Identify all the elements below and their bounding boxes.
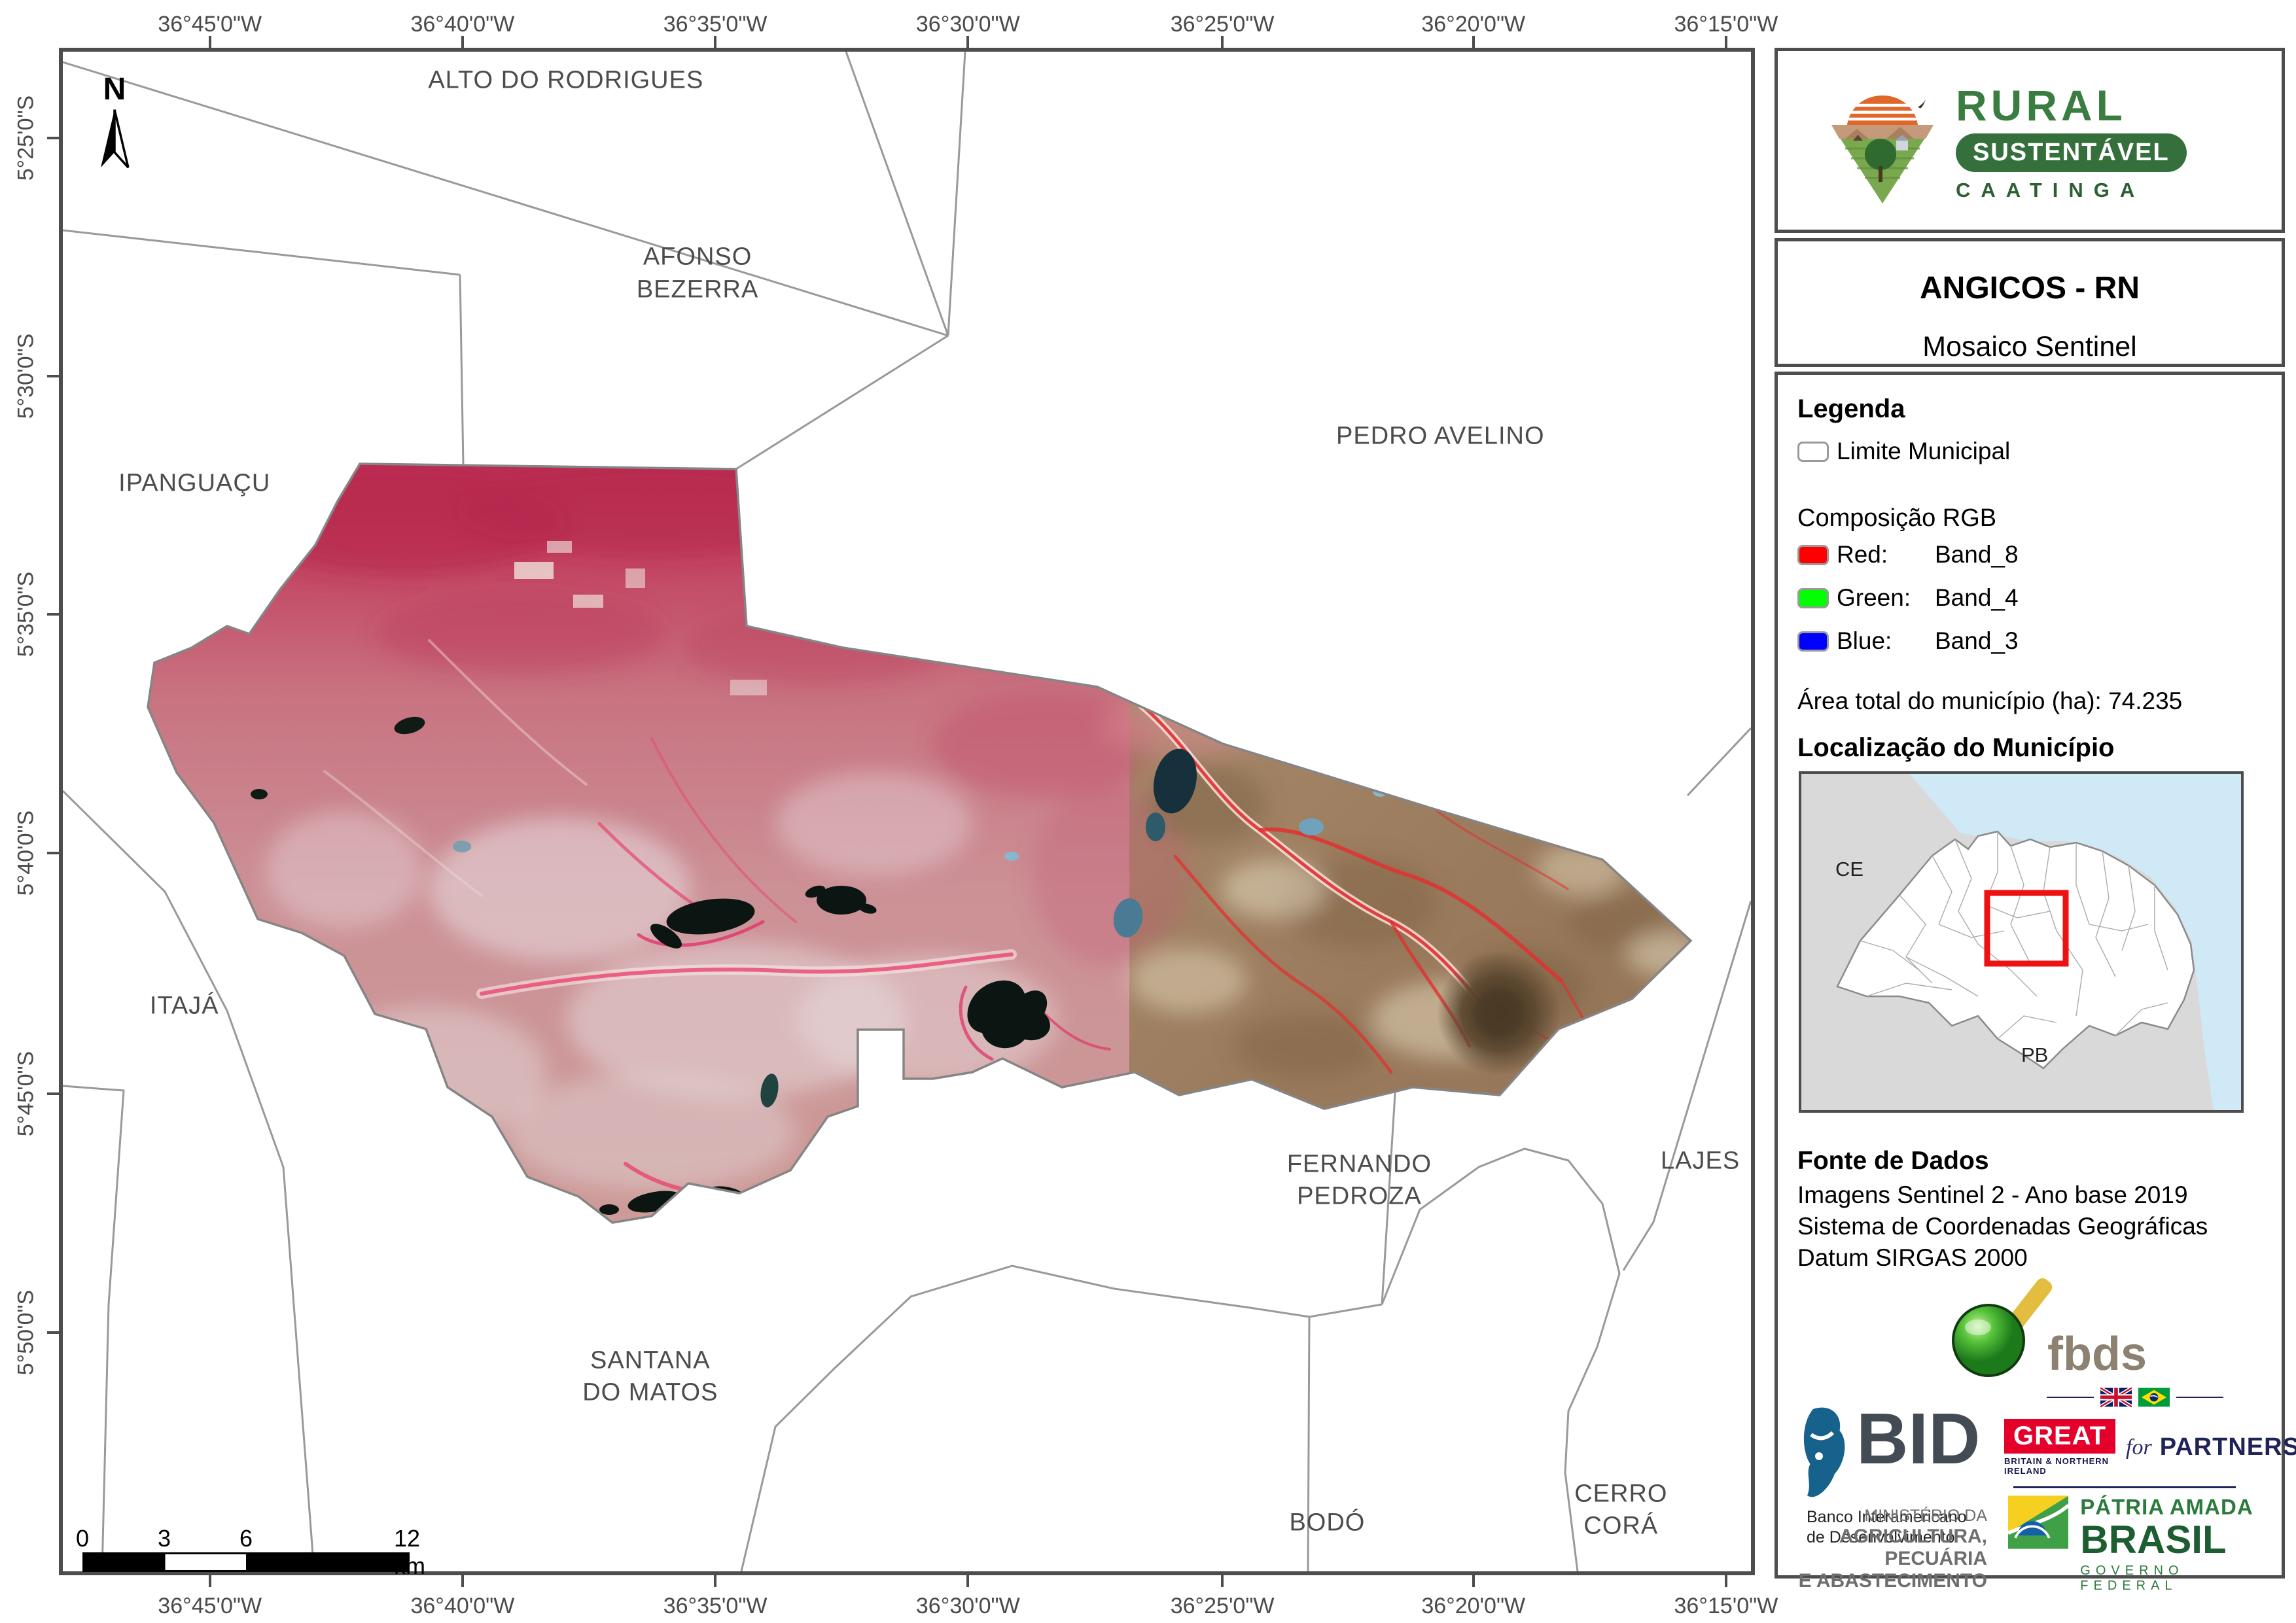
lon-tick-top: [209, 36, 211, 48]
bid-icon: [1797, 1405, 1848, 1503]
area-value: 74.235: [2108, 688, 2182, 714]
location-heading: Localização do Município: [1797, 733, 2115, 763]
lon-tick-top: [966, 36, 969, 48]
lon-tick-top: [1221, 36, 1224, 48]
scale-label-2: 6: [239, 1525, 253, 1552]
satellite-mosaic: [63, 52, 1751, 1571]
lon-tick-bottom: [461, 1575, 464, 1587]
lon-label-bottom: 36°45'0"W: [158, 1594, 262, 1619]
legend-panel: Legenda Limite Municipal Composição RGB …: [1775, 372, 2285, 1579]
state-label-ce: CE: [1835, 858, 1863, 881]
lon-tick-bottom: [714, 1575, 716, 1587]
lat-label-left: 5°50'0"S: [14, 1289, 39, 1374]
brazil-flag-icon: [2138, 1387, 2170, 1407]
fonte-line-1: Imagens Sentinel 2 - Ano base 2019: [1797, 1179, 2208, 1211]
lon-label-bottom: 36°15'0"W: [1674, 1594, 1778, 1619]
place-label-ipangua-u: IPANGUAÇU: [118, 467, 270, 499]
rural-sustentavel-icon: [1824, 77, 1941, 208]
lon-label-bottom: 36°35'0"W: [663, 1594, 768, 1619]
great-partnership-word: PARTNERSHIP: [2160, 1433, 2296, 1461]
green-key: Green:: [1837, 584, 1935, 612]
governo-icon: [2008, 1495, 2068, 1550]
red-key: Red:: [1837, 541, 1935, 568]
lon-tick-top: [714, 36, 716, 48]
governo-federal-logo: PÁTRIA AMADA BRASIL GOVERNO FEDERAL: [2008, 1495, 2282, 1594]
legend-item-blue: Blue:Band_3: [1797, 627, 2019, 655]
place-label-itaj-: ITAJÁ: [150, 990, 219, 1022]
state-label-pb: PB: [2021, 1043, 2048, 1067]
logo-subtitle: SUSTENTÁVEL: [1973, 139, 2170, 166]
governo-line-3: GOVERNO FEDERAL: [2080, 1563, 2282, 1594]
lat-tick-left: [47, 375, 59, 377]
great-sub: BRITAIN & NORTHERN IRELAND: [2004, 1456, 2115, 1476]
legend-item-limite: Limite Municipal: [1797, 438, 2010, 465]
north-label: N: [79, 74, 150, 105]
governo-line-2: BRASIL: [2080, 1520, 2282, 1560]
lon-label-bottom: 36°30'0"W: [916, 1594, 1020, 1619]
north-arrow: N: [79, 74, 150, 175]
place-label-alto-do-rodrigues: ALTO DO RODRIGUES: [428, 64, 703, 96]
lat-label-left: 5°30'0"S: [14, 334, 39, 419]
lon-tick-bottom: [966, 1575, 969, 1587]
lat-label-left: 5°40'0"S: [14, 810, 39, 895]
uk-flag-icon: [2100, 1387, 2132, 1407]
scale-label-1: 3: [158, 1525, 171, 1552]
fonte-heading: Fonte de Dados: [1797, 1147, 1989, 1176]
logo-subtitle-pill: SUSTENTÁVEL: [1956, 133, 2187, 172]
north-arrow-icon: [92, 107, 137, 172]
lon-label-top: 36°30'0"W: [916, 12, 1020, 37]
ministerio-line-3: E ABASTECIMENTO: [1797, 1570, 1987, 1592]
location-inset-map: CE PB: [1799, 771, 2244, 1113]
lon-label-top: 36°45'0"W: [158, 12, 262, 37]
flag-divider-right: [2176, 1397, 2223, 1398]
legend-heading: Legenda: [1797, 394, 1905, 424]
map-subtitle: Mosaico Sentinel: [1778, 331, 2282, 363]
great-for: for: [2126, 1435, 2152, 1460]
area-total: Área total do município (ha): 74.235: [1797, 688, 2182, 715]
title-panel: ANGICOS - RN Mosaico Sentinel: [1775, 238, 2285, 367]
blue-key: Blue:: [1837, 627, 1935, 655]
lat-label-left: 5°25'0"S: [14, 96, 39, 181]
program-logo-panel: RURAL SUSTENTÁVEL CAATINGA: [1775, 48, 2285, 233]
legend-item-red: Red:Band_8: [1797, 541, 2019, 568]
place-label-fernando-pedroza: FERNANDO PEDROZA: [1287, 1149, 1432, 1213]
place-label-santana-do-matos: SANTANA DO MATOS: [582, 1344, 718, 1409]
blue-value: Band_3: [1935, 627, 2019, 654]
green-value: Band_4: [1935, 584, 2019, 611]
great-partnership-logo: GREAT BRITAIN & NORTHERN IRELAND for PAR…: [2004, 1387, 2266, 1488]
fbds-wordmark: fbds: [2047, 1327, 2147, 1381]
lon-tick-top: [461, 36, 464, 48]
governo-line-1: PÁTRIA AMADA: [2080, 1495, 2282, 1520]
area-label: Área total do município (ha):: [1797, 688, 2102, 714]
place-label-bod-: BODÓ: [1289, 1507, 1365, 1539]
lat-tick-left: [47, 137, 59, 139]
lon-label-top: 36°15'0"W: [1674, 12, 1778, 37]
bid-wordmark: BID: [1856, 1405, 1980, 1474]
logo-title: RURAL: [1956, 84, 2187, 127]
lon-label-top: 36°35'0"W: [663, 12, 768, 37]
ministerio-logo: MINISTÉRIO DA AGRICULTURA, PECUÁRIA E AB…: [1797, 1507, 1987, 1592]
red-swatch: [1797, 545, 1829, 565]
lat-tick-left: [47, 1092, 59, 1095]
great-box: GREAT: [2004, 1419, 2115, 1454]
lat-tick-left: [47, 852, 59, 854]
sentinel-raster: [128, 444, 1718, 1262]
green-swatch: [1797, 588, 1829, 608]
lon-label-top: 36°40'0"W: [410, 12, 514, 37]
place-label-pedro-avelino: PEDRO AVELINO: [1336, 420, 1545, 452]
lon-tick-bottom: [1725, 1575, 1727, 1587]
limite-swatch: [1797, 442, 1829, 462]
great-divider-line: [2013, 1486, 2236, 1488]
blue-swatch: [1797, 631, 1829, 652]
ministerio-line-1: MINISTÉRIO DA: [1797, 1507, 1987, 1526]
lon-label-top: 36°25'0"W: [1171, 12, 1275, 37]
lon-tick-bottom: [209, 1575, 211, 1587]
legend-item-green: Green:Band_4: [1797, 584, 2019, 612]
lat-tick-left: [47, 1331, 59, 1334]
lon-tick-top: [1472, 36, 1475, 48]
lon-tick-bottom: [1472, 1575, 1475, 1587]
ministerio-line-2: AGRICULTURA, PECUÁRIA: [1797, 1526, 1987, 1570]
lon-tick-bottom: [1221, 1575, 1224, 1587]
lat-tick-left: [47, 613, 59, 616]
lon-tick-top: [1725, 36, 1727, 48]
place-label-lajes: LAJES: [1661, 1145, 1740, 1177]
fonte-lines: Imagens Sentinel 2 - Ano base 2019 Siste…: [1797, 1179, 2208, 1274]
map-title: ANGICOS - RN: [1778, 270, 2282, 306]
map-layout-page: N 03612 km ALTO DO RODRIGUESAFONSO BEZER…: [0, 0, 2296, 1623]
limite-label: Limite Municipal: [1837, 438, 2010, 465]
lon-label-bottom: 36°40'0"W: [410, 1594, 514, 1619]
fonte-line-2: Sistema de Coordenadas Geográficas: [1797, 1211, 2208, 1242]
logo-tagline: CAATINGA: [1956, 179, 2187, 202]
lon-label-bottom: 36°20'0"W: [1421, 1594, 1525, 1619]
scale-label-0: 0: [76, 1525, 89, 1552]
red-value: Band_8: [1935, 541, 2019, 568]
place-label-cerro-cor-: CERRO CORÁ: [1556, 1478, 1686, 1543]
lon-label-top: 36°20'0"W: [1421, 12, 1525, 37]
map-canvas: N 03612 km ALTO DO RODRIGUESAFONSO BEZER…: [59, 48, 1755, 1575]
place-label-afonso-bezerra: AFONSO BEZERRA: [637, 241, 758, 306]
scale-bar: 03612 km: [82, 1525, 410, 1573]
fbds-logo: fbds: [1778, 1270, 2282, 1381]
lat-label-left: 5°45'0"S: [14, 1051, 39, 1136]
scale-bar-graphic: [82, 1552, 410, 1572]
lon-label-bottom: 36°25'0"W: [1171, 1594, 1275, 1619]
scale-label-3: 12 km: [394, 1525, 425, 1580]
lat-label-left: 5°35'0"S: [14, 572, 39, 657]
flag-divider-left: [2047, 1397, 2094, 1398]
rgb-heading: Composição RGB: [1797, 504, 1996, 532]
